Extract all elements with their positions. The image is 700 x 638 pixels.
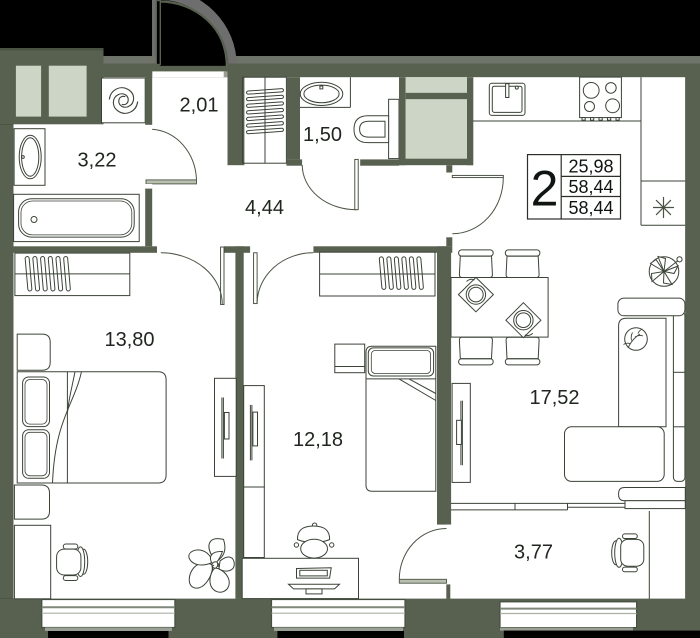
- svg-text:3,22: 3,22: [78, 150, 117, 172]
- svg-text:2: 2: [531, 161, 559, 217]
- svg-text:58,44: 58,44: [568, 198, 613, 218]
- svg-text:12,18: 12,18: [293, 429, 343, 451]
- svg-text:3,77: 3,77: [514, 542, 553, 564]
- svg-text:25,98: 25,98: [568, 156, 613, 176]
- svg-text:17,52: 17,52: [529, 387, 579, 409]
- svg-text:58,44: 58,44: [568, 177, 613, 197]
- svg-text:13,80: 13,80: [104, 329, 154, 351]
- svg-text:2,01: 2,01: [180, 95, 219, 117]
- svg-text:1,50: 1,50: [303, 124, 342, 146]
- svg-text:4,44: 4,44: [245, 197, 284, 219]
